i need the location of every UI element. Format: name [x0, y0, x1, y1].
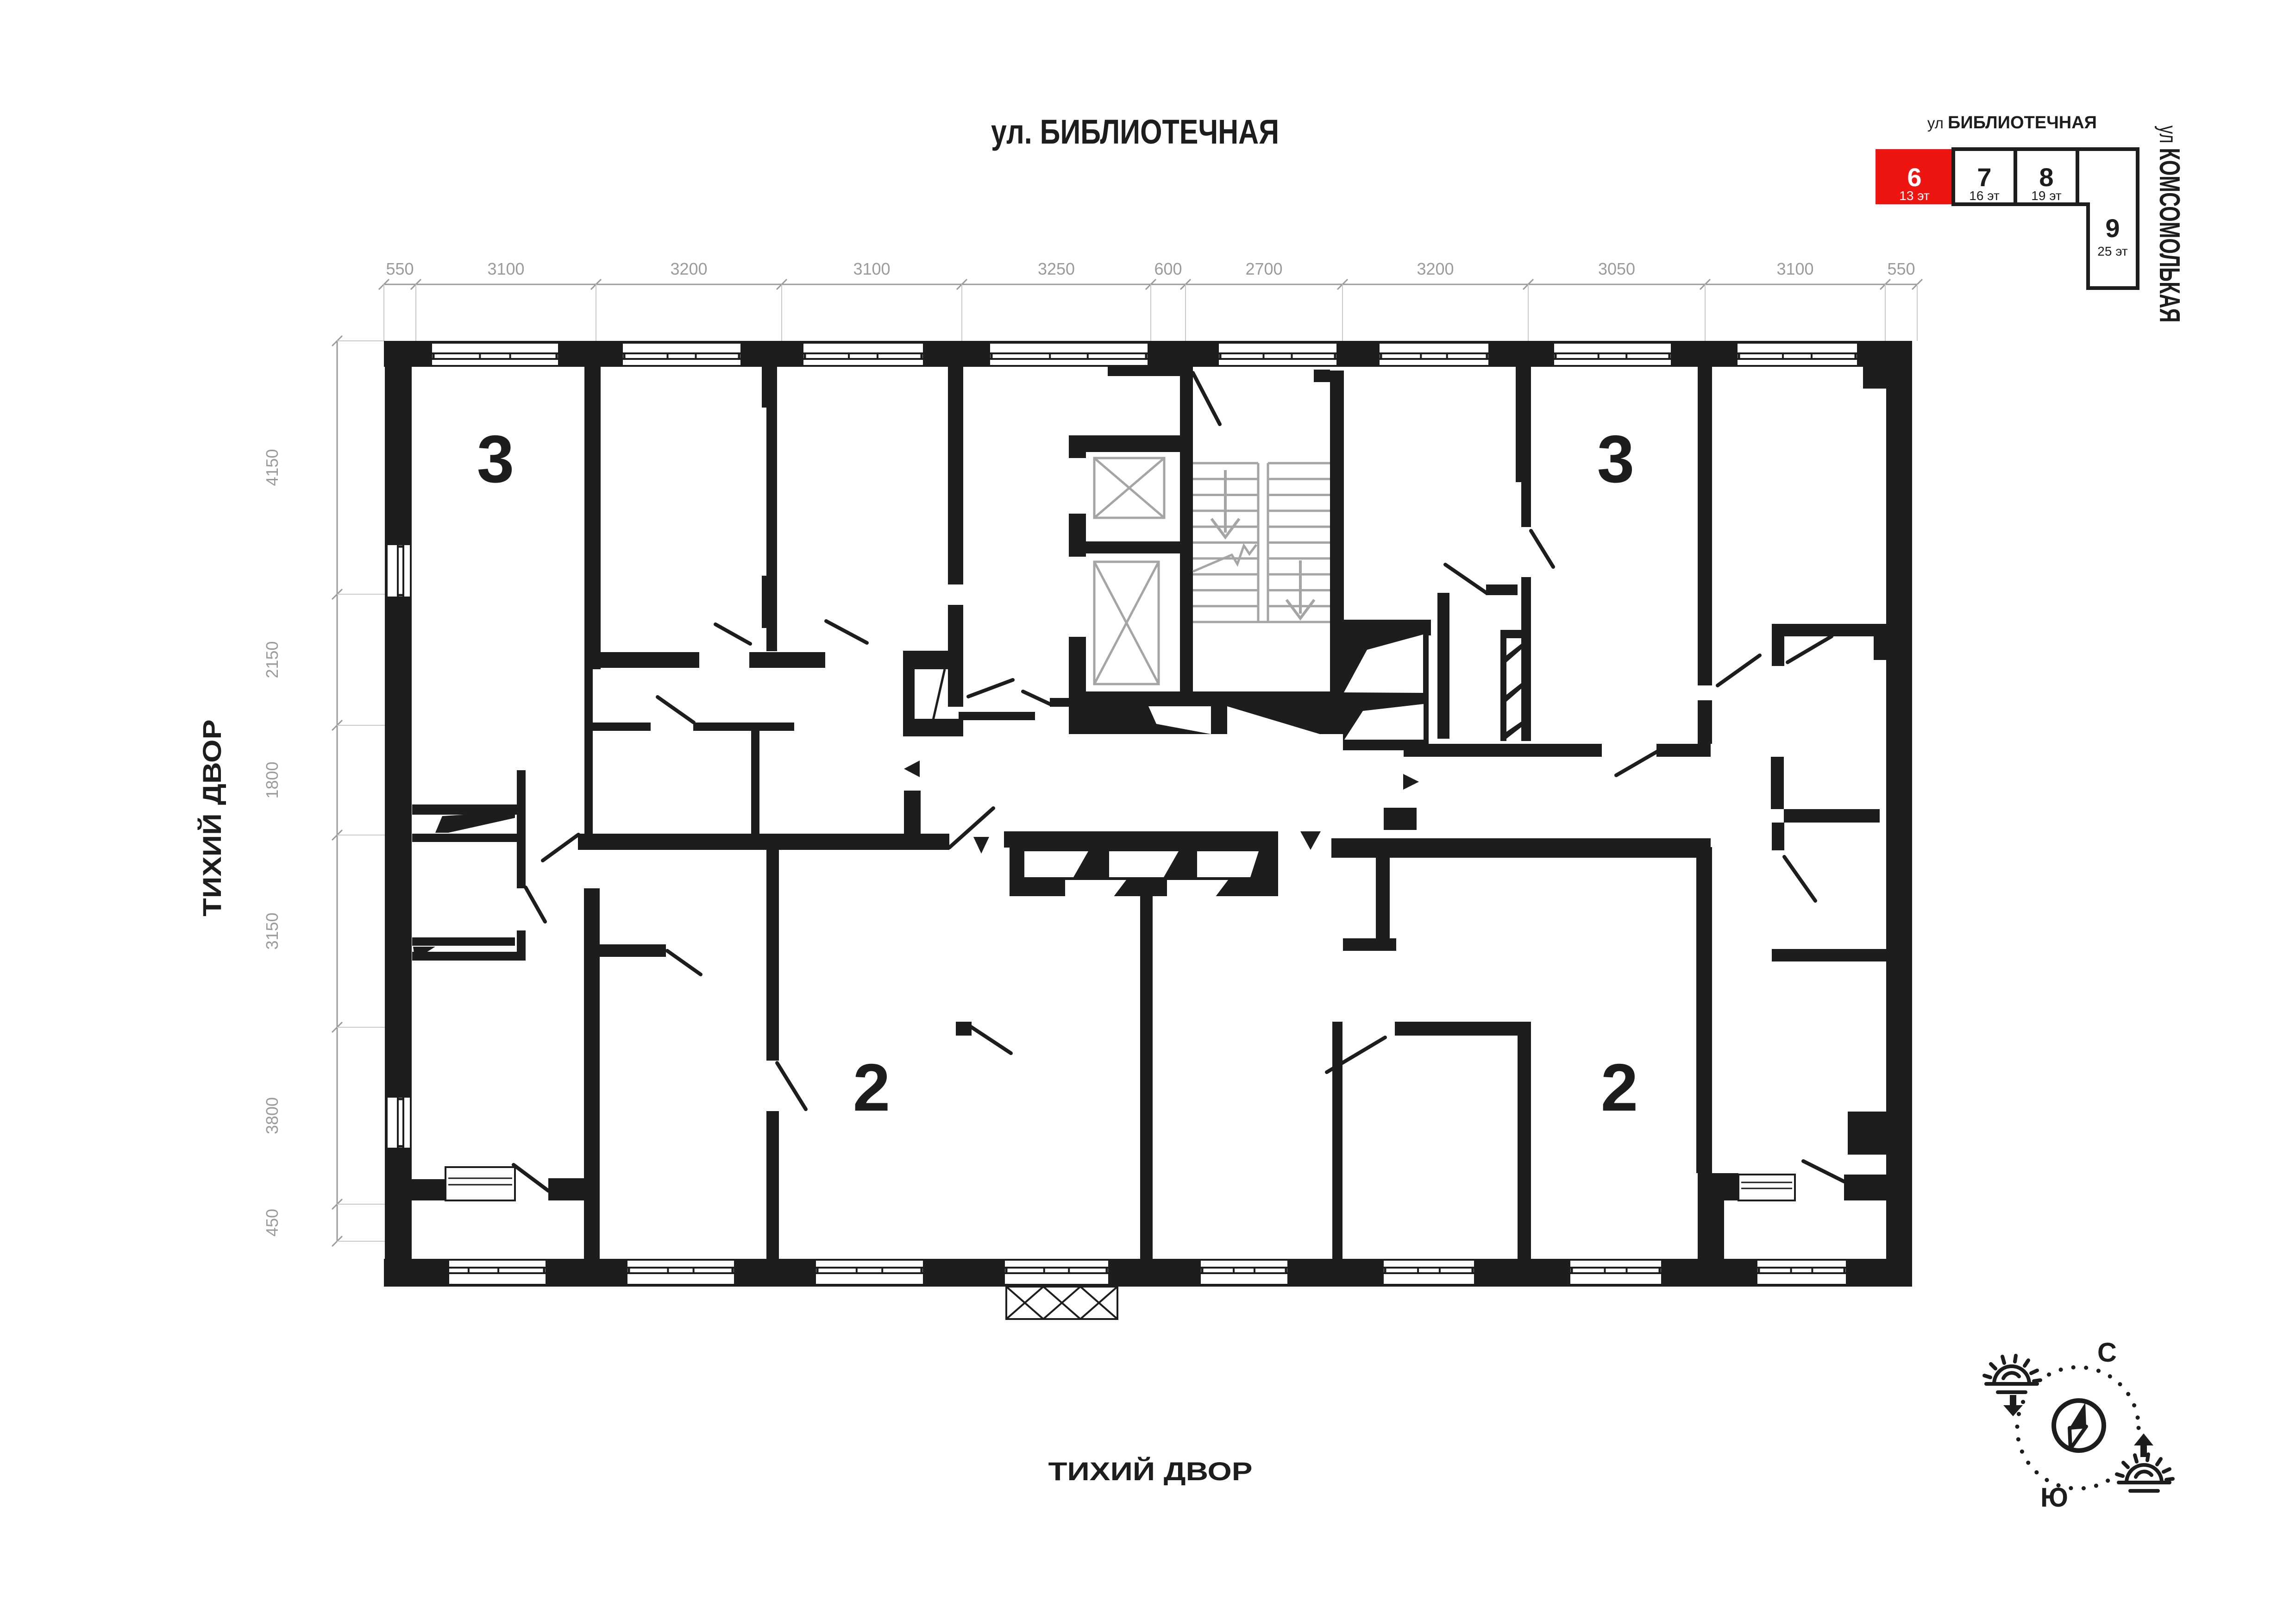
svg-text:3250: 3250 — [1038, 259, 1075, 278]
svg-text:600: 600 — [1154, 259, 1182, 278]
svg-text:3100: 3100 — [1776, 259, 1813, 278]
svg-text:1800: 1800 — [263, 761, 282, 798]
svg-text:3100: 3100 — [487, 259, 524, 278]
svg-text:550: 550 — [1887, 259, 1915, 278]
svg-text:25 эт: 25 эт — [2097, 244, 2128, 258]
svg-text:3100: 3100 — [853, 259, 890, 278]
svg-text:3800: 3800 — [263, 1097, 282, 1134]
svg-text:ТИХИЙ ДВОР: ТИХИЙ ДВОР — [197, 719, 226, 916]
svg-text:ул КОМСОМОЛЬКАЯ: ул КОМСОМОЛЬКАЯ — [2153, 126, 2185, 323]
svg-text:Ю: Ю — [2040, 1483, 2068, 1513]
svg-text:ул БИБЛИОТЕЧНАЯ: ул БИБЛИОТЕЧНАЯ — [1927, 113, 2097, 132]
svg-text:3050: 3050 — [1598, 259, 1635, 278]
svg-text:ул. БИБЛИОТЕЧНАЯ: ул. БИБЛИОТЕЧНАЯ — [991, 113, 1279, 151]
svg-text:8: 8 — [2039, 163, 2053, 192]
svg-text:3200: 3200 — [670, 259, 707, 278]
svg-text:3: 3 — [1597, 421, 1635, 496]
svg-text:2700: 2700 — [1245, 259, 1282, 278]
svg-text:2: 2 — [1601, 1050, 1638, 1125]
svg-text:9: 9 — [2105, 214, 2120, 243]
svg-text:3150: 3150 — [263, 912, 282, 949]
svg-text:2150: 2150 — [263, 641, 282, 678]
svg-text:3200: 3200 — [1417, 259, 1454, 278]
svg-text:450: 450 — [263, 1209, 282, 1237]
svg-text:6: 6 — [1907, 163, 1921, 192]
svg-text:ТИХИЙ ДВОР: ТИХИЙ ДВОР — [1048, 1457, 1253, 1486]
svg-text:550: 550 — [386, 259, 414, 278]
svg-text:13 эт: 13 эт — [1899, 188, 1930, 203]
svg-text:4150: 4150 — [263, 449, 282, 486]
svg-text:19 эт: 19 эт — [2031, 188, 2062, 203]
svg-text:7: 7 — [1977, 163, 1991, 192]
svg-text:3: 3 — [477, 421, 514, 496]
svg-text:16 эт: 16 эт — [1969, 188, 2000, 203]
svg-text:2: 2 — [853, 1050, 891, 1125]
svg-text:С: С — [2097, 1338, 2117, 1368]
